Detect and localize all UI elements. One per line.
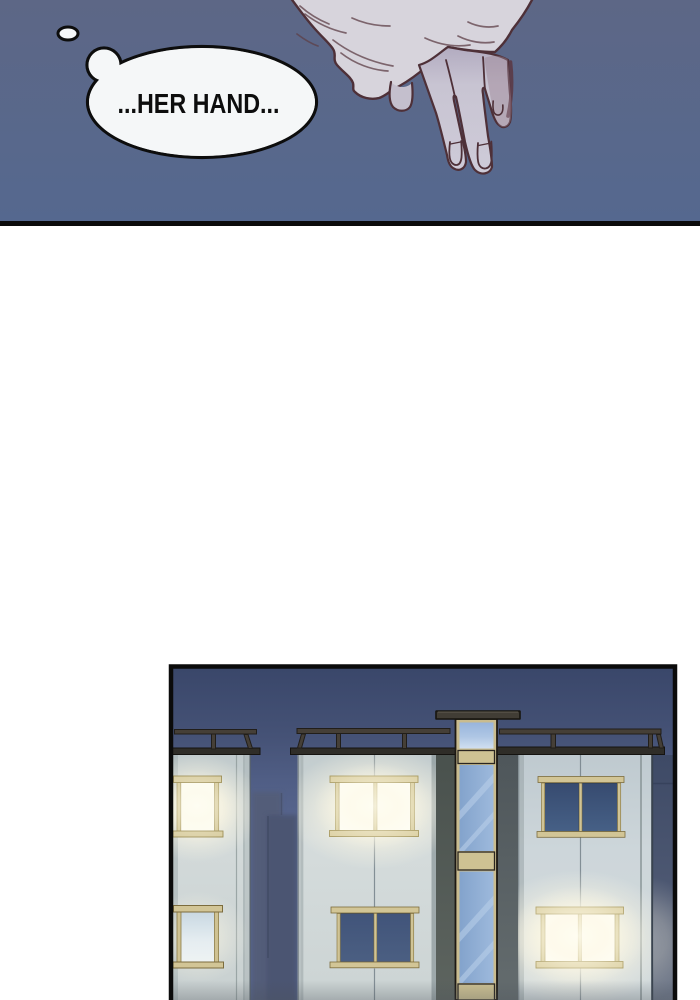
svg-text:...HER HAND...: ...HER HAND... (118, 88, 280, 119)
